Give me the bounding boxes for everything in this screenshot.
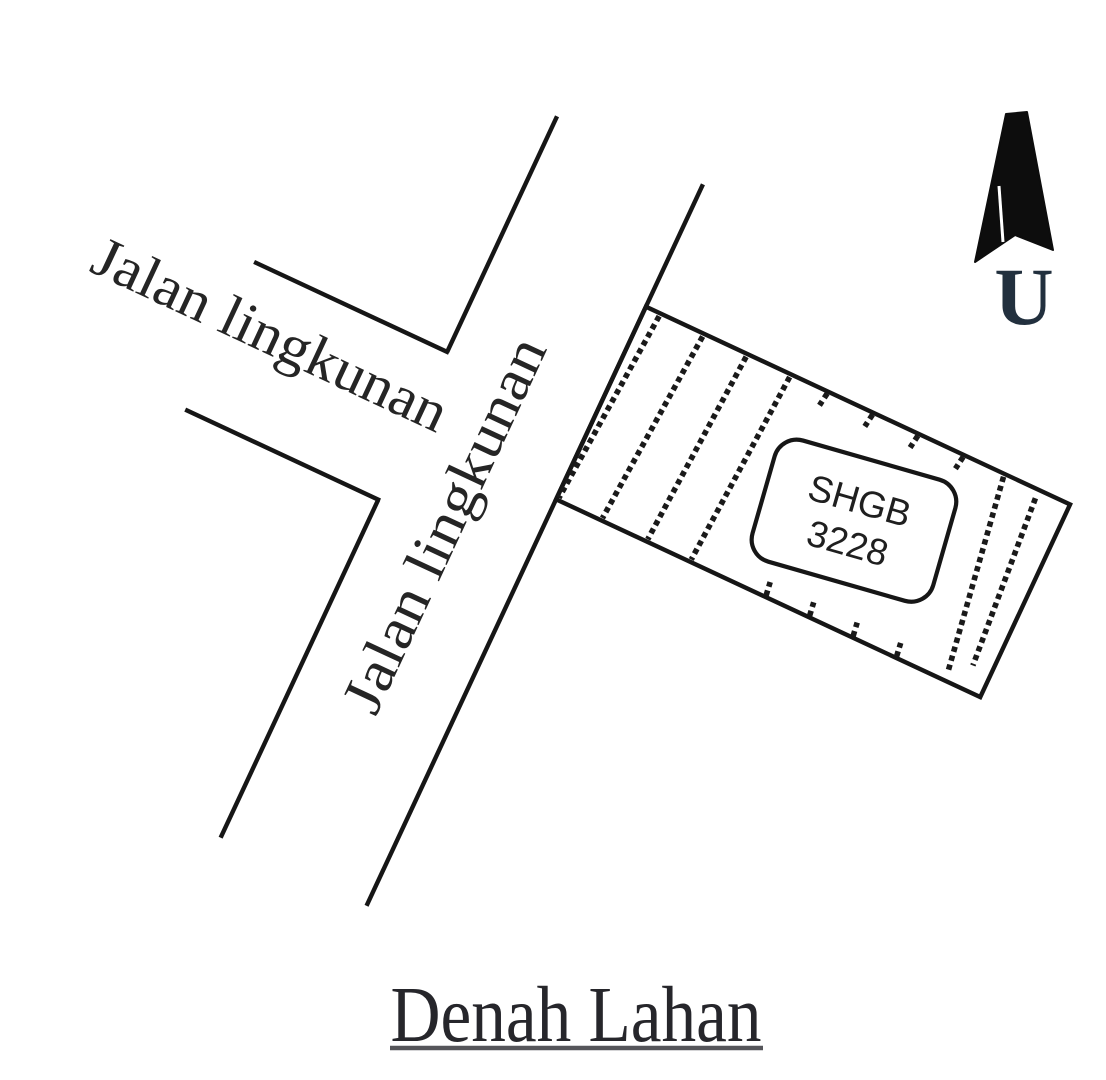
svg-text:U: U (994, 251, 1053, 342)
